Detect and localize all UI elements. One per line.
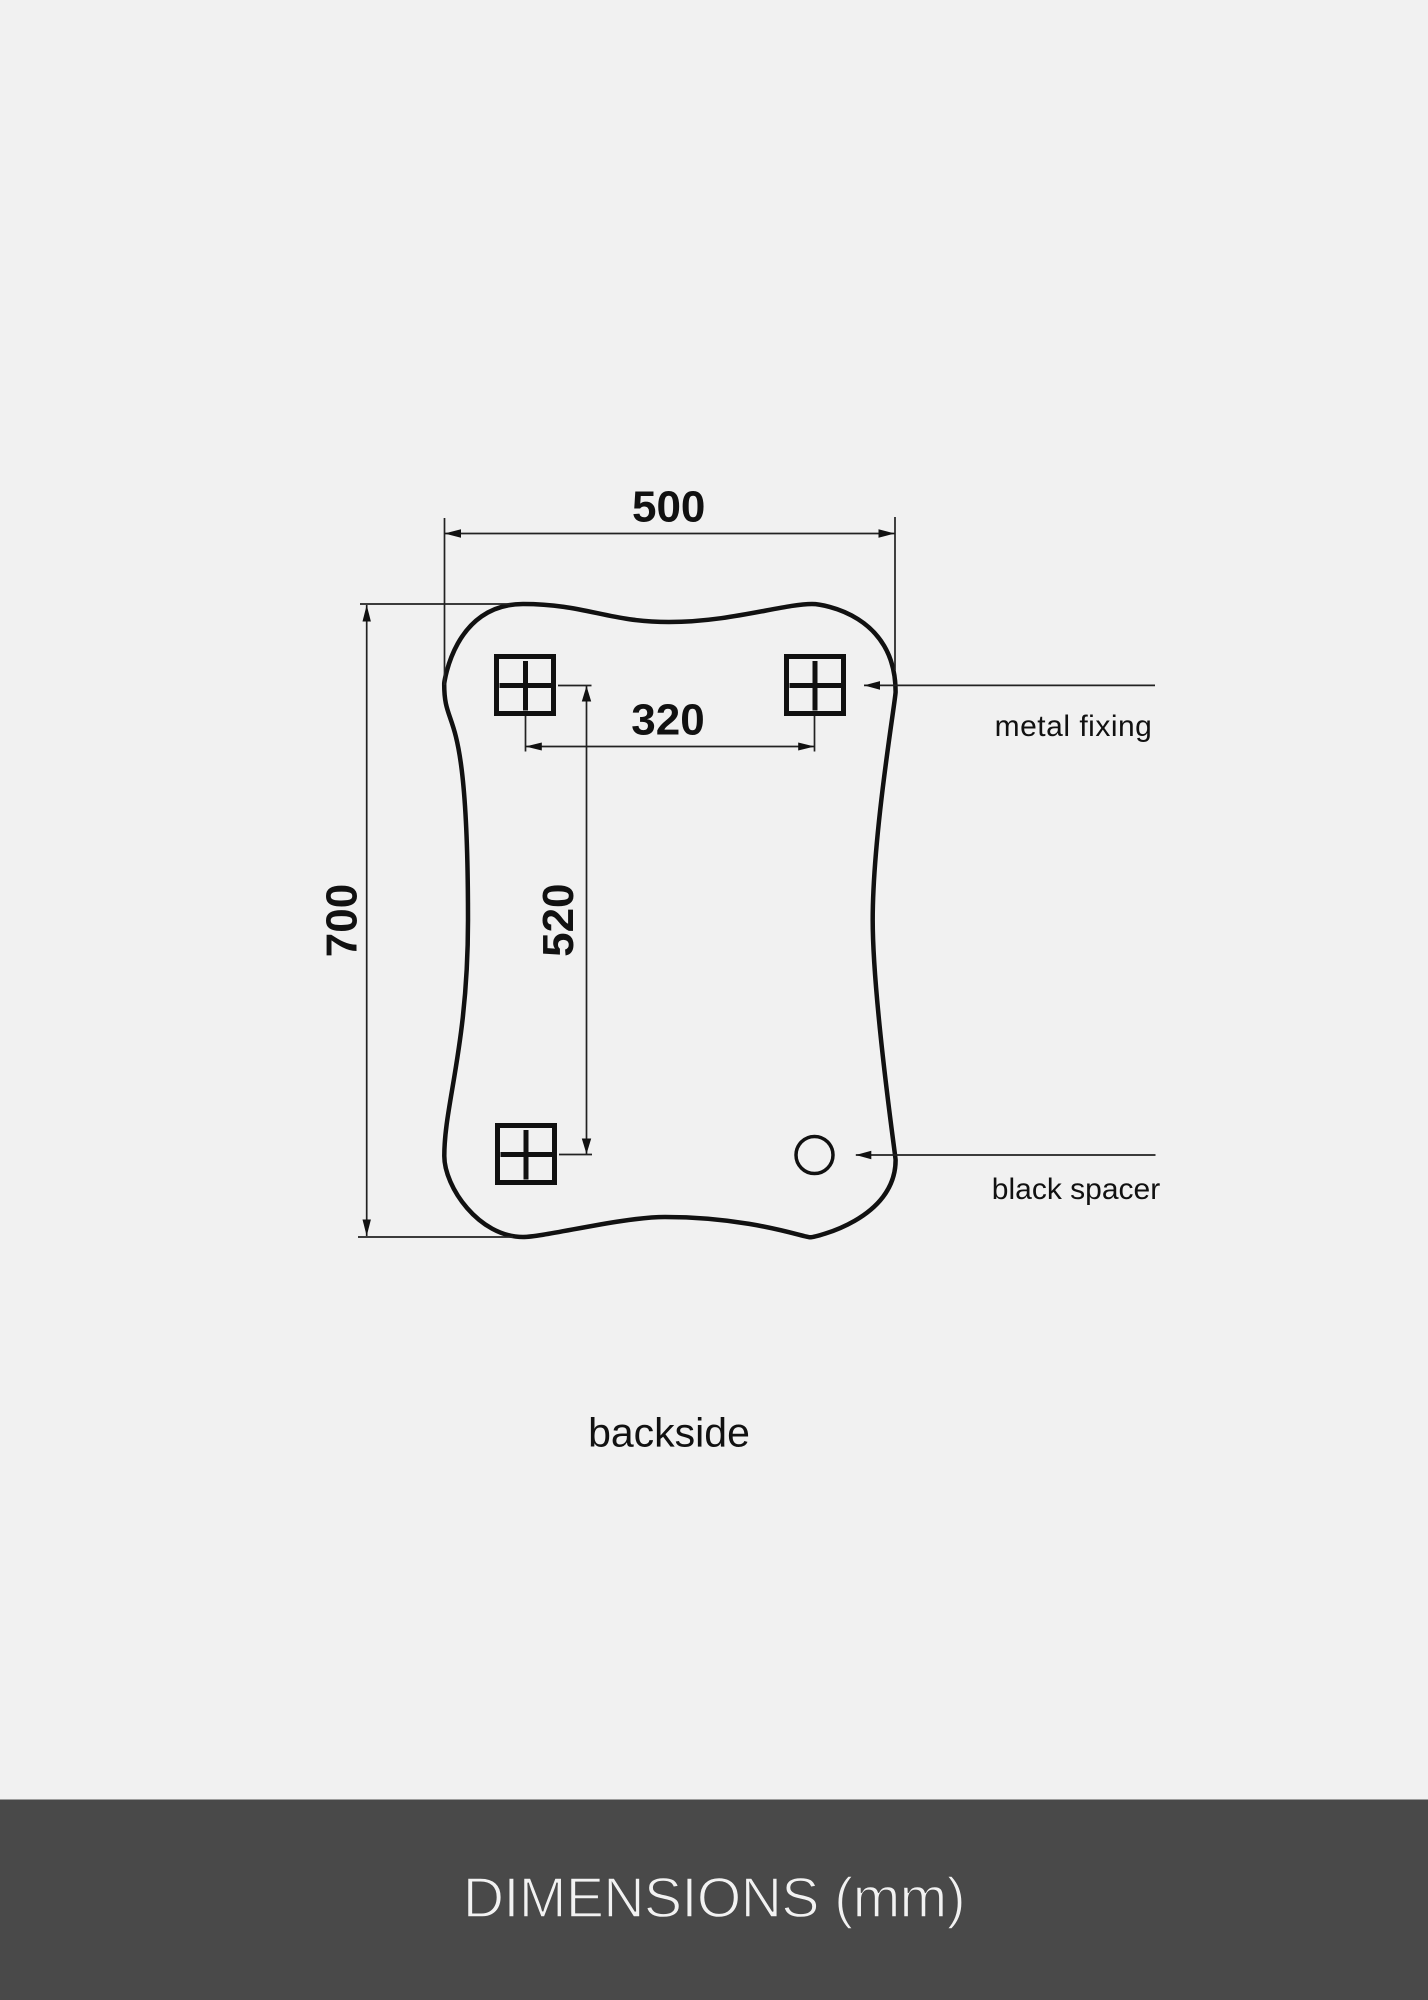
svg-text:backside: backside (588, 1410, 750, 1456)
svg-text:500: 500 (632, 482, 705, 531)
svg-text:700: 700 (318, 884, 367, 957)
svg-text:DIMENSIONS (mm): DIMENSIONS (mm) (463, 1866, 965, 1930)
svg-text:320: 320 (631, 695, 704, 744)
svg-text:black spacer: black spacer (992, 1173, 1160, 1206)
svg-text:metal fixing: metal fixing (995, 710, 1153, 743)
svg-text:520: 520 (534, 883, 583, 956)
